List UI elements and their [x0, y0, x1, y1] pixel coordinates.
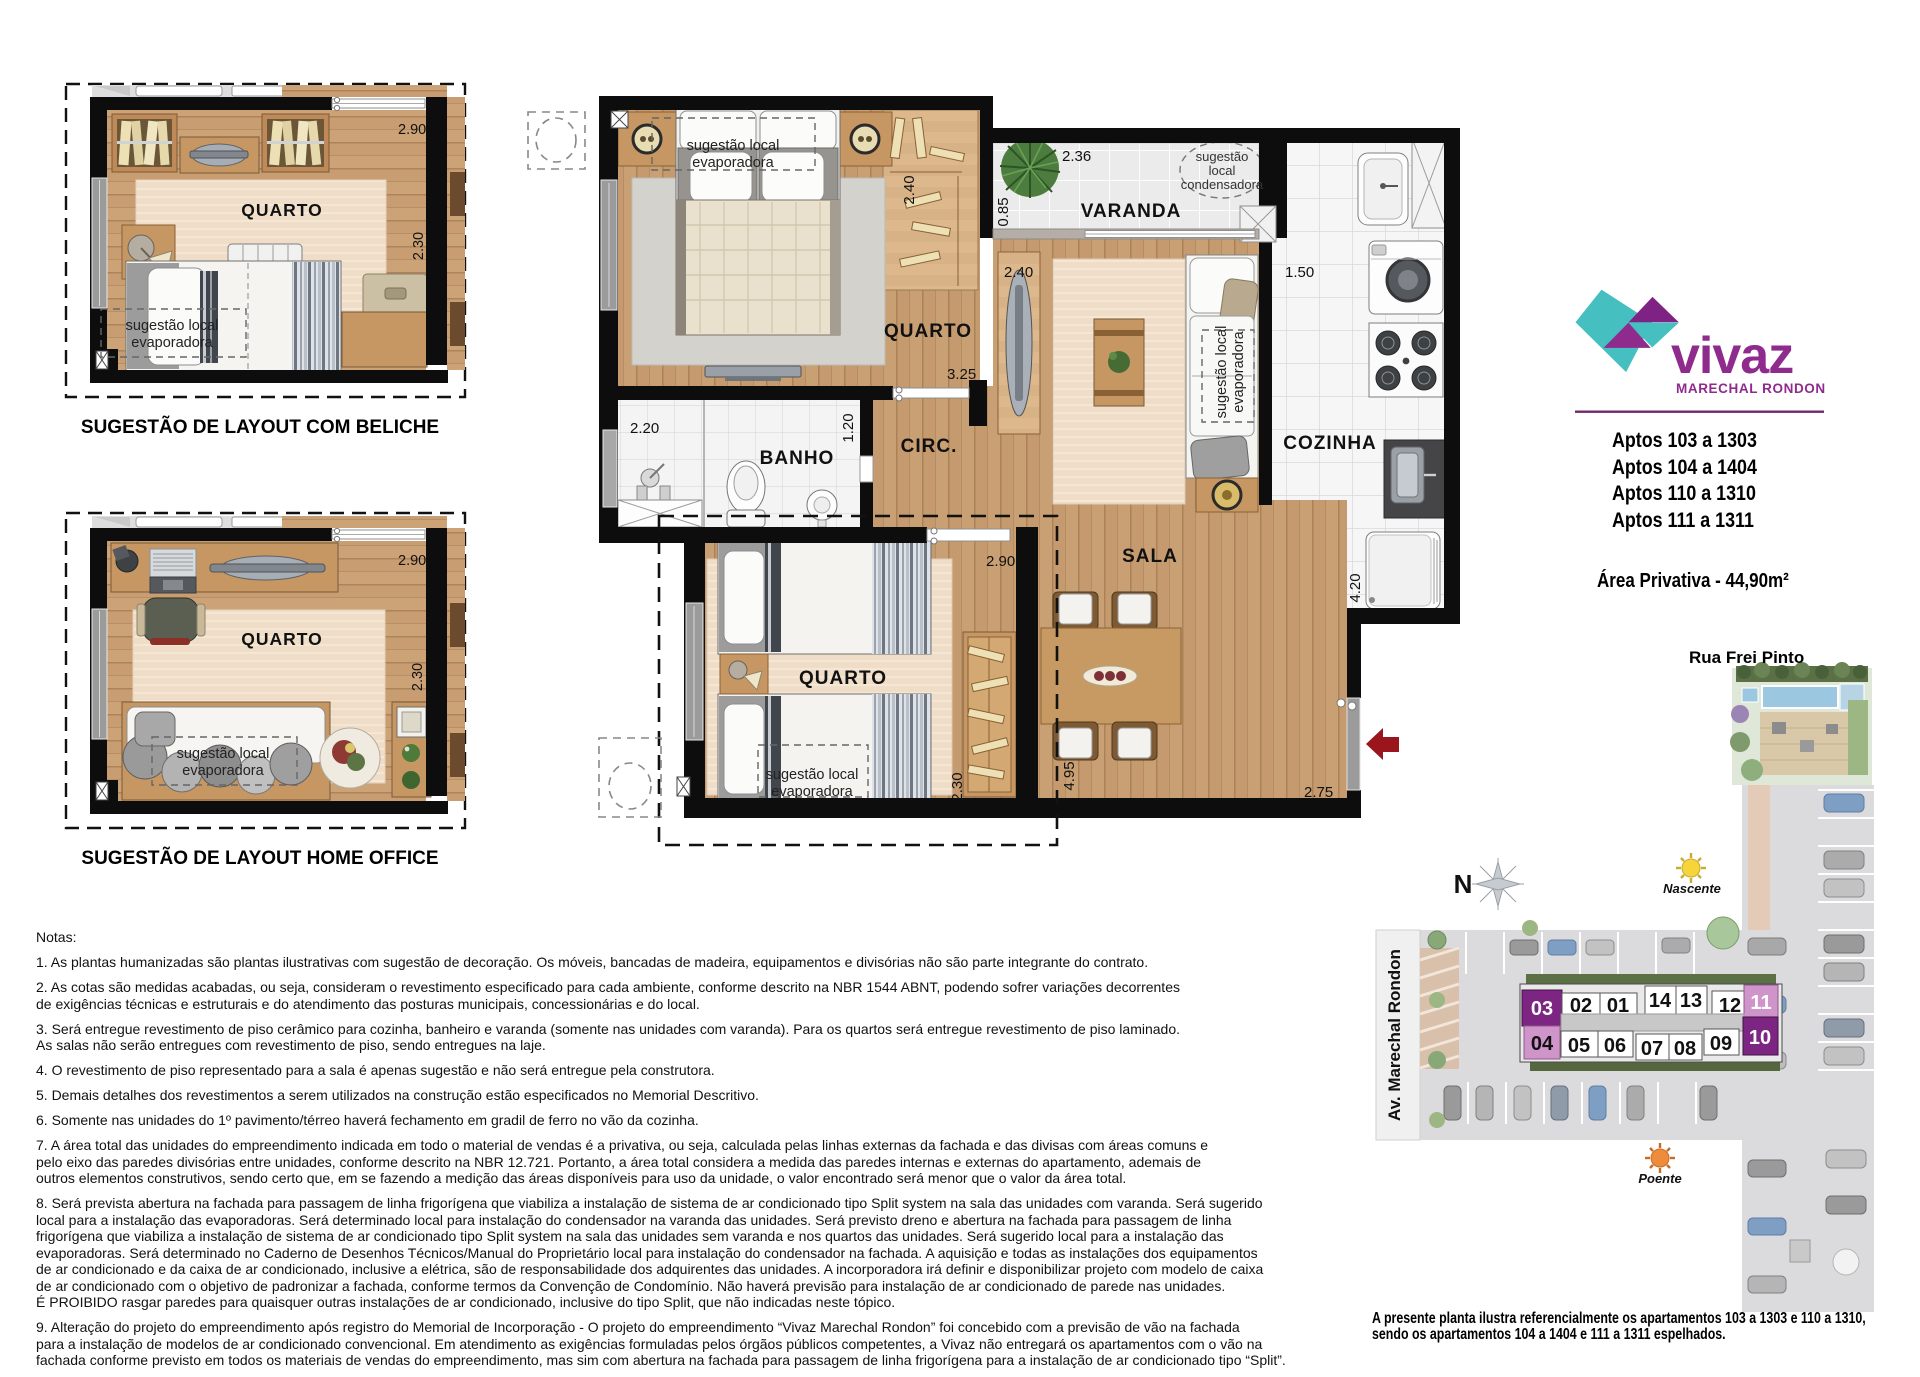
- svg-text:COZINHA: COZINHA: [1283, 433, 1377, 454]
- svg-text:evaporadora: evaporadora: [692, 155, 774, 171]
- svg-text:sugestão local: sugestão local: [126, 318, 219, 334]
- svg-text:2.36: 2.36: [1062, 148, 1091, 165]
- svg-text:evaporadora: evaporadora: [182, 763, 264, 779]
- svg-text:SALA: SALA: [1122, 546, 1178, 567]
- svg-text:sugestão local: sugestão local: [177, 746, 270, 762]
- svg-text:2.90: 2.90: [986, 553, 1015, 570]
- svg-text:N: N: [1454, 869, 1473, 899]
- svg-text:4.20: 4.20: [1347, 573, 1364, 602]
- svg-text:vivaz: vivaz: [1671, 327, 1793, 385]
- svg-text:QUARTO: QUARTO: [884, 321, 972, 342]
- svg-text:evaporadora: evaporadora: [771, 784, 853, 800]
- svg-text:2.90: 2.90: [398, 553, 426, 569]
- svg-text:2.75: 2.75: [1304, 784, 1333, 801]
- svg-text:2.30: 2.30: [949, 772, 966, 801]
- svg-text:sugestão local: sugestão local: [687, 138, 780, 154]
- svg-text:0.85: 0.85: [995, 197, 1012, 226]
- svg-text:3.25: 3.25: [947, 366, 976, 383]
- svg-text:CIRC.: CIRC.: [901, 436, 958, 457]
- svg-text:BANHO: BANHO: [760, 448, 835, 469]
- svg-text:sugestão local: sugestão local: [766, 767, 859, 783]
- svg-text:evaporadora: evaporadora: [1231, 330, 1247, 412]
- svg-text:2.30: 2.30: [411, 232, 427, 260]
- svg-text:condensadora: condensadora: [1181, 177, 1264, 192]
- svg-text:1.20: 1.20: [840, 413, 857, 442]
- svg-text:Nascente: Nascente: [1663, 881, 1721, 896]
- svg-text:QUARTO: QUARTO: [241, 629, 323, 649]
- svg-text:MARECHAL RONDON: MARECHAL RONDON: [1676, 381, 1826, 396]
- svg-text:1.50: 1.50: [1285, 264, 1314, 281]
- svg-text:local: local: [1209, 163, 1236, 178]
- svg-text:VARANDA: VARANDA: [1081, 201, 1182, 222]
- svg-text:2.20: 2.20: [630, 420, 659, 437]
- svg-text:2.30: 2.30: [410, 663, 426, 691]
- svg-text:4.95: 4.95: [1061, 761, 1078, 790]
- svg-text:QUARTO: QUARTO: [241, 200, 323, 220]
- svg-text:2.40: 2.40: [1004, 264, 1033, 281]
- svg-text:2.90: 2.90: [398, 122, 426, 138]
- svg-text:evaporadora: evaporadora: [131, 335, 213, 351]
- svg-text:sugestão: sugestão: [1196, 149, 1249, 164]
- svg-text:sugestão local: sugestão local: [1214, 326, 1230, 419]
- svg-text:QUARTO: QUARTO: [799, 668, 887, 689]
- svg-text:2.40: 2.40: [901, 175, 918, 204]
